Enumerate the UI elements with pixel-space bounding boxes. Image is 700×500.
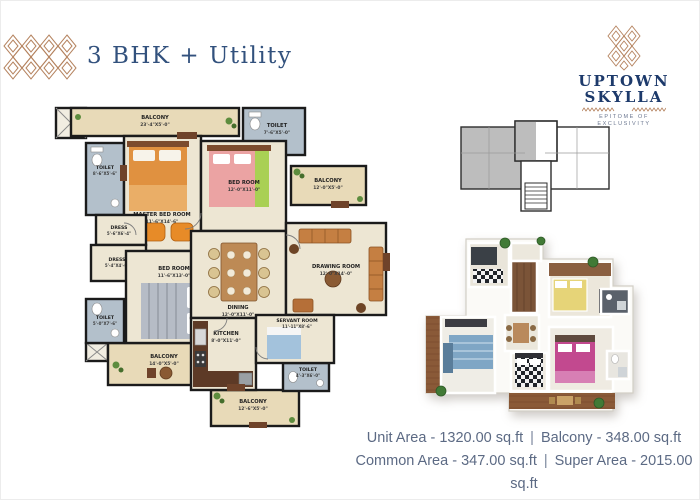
side-table-icon bbox=[289, 244, 299, 254]
plan3d-bedroom-magenta bbox=[549, 327, 613, 391]
page-title: 3 BHK + Utility bbox=[87, 43, 292, 69]
sofa-icon bbox=[443, 343, 453, 373]
pillow-icon bbox=[213, 154, 230, 164]
plan3d-hall bbox=[511, 243, 541, 261]
room-bed-top: BED ROOM 12'-0"X11'-0" bbox=[201, 141, 286, 231]
separator: | bbox=[537, 453, 555, 469]
checker-floor bbox=[473, 269, 503, 283]
svg-text:5'-6"X6'-4": 5'-6"X6'-4" bbox=[107, 231, 131, 236]
area-line-2: Common Area - 347.00 sq.ft|Super Area - … bbox=[349, 450, 699, 496]
patio-table-icon bbox=[557, 396, 573, 405]
wc-icon bbox=[92, 154, 102, 166]
logo-name-line1: UPTOWN bbox=[574, 73, 674, 89]
floor-plan-2d: BALCONY 23'-4"X5'-0" BALCONY 12'-0"X5'-0… bbox=[31, 103, 396, 455]
unit-area-text: Unit Area - 1320.00 sq.ft bbox=[367, 430, 523, 446]
svg-text:14'-0"X5'-0": 14'-0"X5'-0" bbox=[149, 361, 179, 367]
headboard-icon bbox=[555, 335, 595, 342]
area-line-1: Unit Area - 1320.00 sq.ft|Balcony - 348.… bbox=[349, 427, 699, 450]
pillow-icon bbox=[159, 150, 181, 161]
svg-text:BALCONY: BALCONY bbox=[239, 399, 267, 405]
armchair-icon bbox=[171, 223, 193, 241]
svg-text:KITCHEN: KITCHEN bbox=[213, 331, 239, 337]
chair-icon bbox=[259, 268, 270, 279]
key-plan bbox=[449, 113, 624, 218]
svg-text:BALCONY: BALCONY bbox=[150, 354, 178, 360]
pillow-icon bbox=[234, 154, 251, 164]
svg-text:4'-3"X6'-0": 4'-3"X6'-0" bbox=[296, 373, 320, 378]
service-shaft bbox=[86, 343, 108, 361]
room-toilet-servant: TOILET 4'-3"X6'-0" bbox=[283, 363, 329, 391]
svg-text:11'-11"X8'-6": 11'-11"X8'-6" bbox=[282, 324, 312, 329]
room-toilet-bottom-left: TOILET 5'-0"X7'-6" bbox=[86, 299, 124, 343]
plan3d-bath-top bbox=[601, 289, 629, 314]
key-plan-stairs-icon bbox=[525, 183, 547, 209]
room-toilet-left: TOILET 8'-6"X5'-6" bbox=[86, 143, 124, 215]
room-balcony-top: BALCONY 23'-4"X5'-0" bbox=[71, 108, 239, 136]
chair-icon bbox=[209, 268, 220, 279]
logo-lattice-icon bbox=[607, 25, 641, 71]
bed-runner-icon bbox=[255, 151, 269, 207]
balcony-chair-icon bbox=[147, 368, 156, 378]
dining-table-icon bbox=[513, 323, 529, 343]
headboard-icon bbox=[515, 353, 543, 358]
svg-text:DRAWING ROOM: DRAWING ROOM bbox=[312, 264, 360, 270]
room-dining: DINING 12'-0"X11'-0" bbox=[191, 231, 286, 318]
plan3d-kitchen bbox=[469, 243, 509, 287]
plan3d-bath-bottom bbox=[607, 351, 629, 379]
balcony-area-text: Balcony - 348.00 sq.ft bbox=[541, 430, 681, 446]
washbasin-icon bbox=[111, 199, 119, 207]
svg-text:8'-6"X5'-6": 8'-6"X5'-6" bbox=[93, 171, 117, 176]
wc-tank-icon bbox=[249, 112, 261, 117]
brand-lattice-pattern bbox=[3, 34, 77, 80]
headboard-icon bbox=[207, 145, 271, 151]
svg-text:11'-6"X13'-0": 11'-6"X13'-0" bbox=[158, 273, 191, 279]
svg-text:BED ROOM: BED ROOM bbox=[228, 180, 260, 186]
plan3d-dining bbox=[505, 315, 539, 351]
area-summary: Unit Area - 1320.00 sq.ft|Balcony - 348.… bbox=[349, 427, 699, 496]
diamond-row-2 bbox=[13, 46, 67, 68]
room-kitchen: KITCHEN 8'-0"X11'-0" bbox=[191, 318, 256, 390]
diamond-row-3 bbox=[4, 57, 76, 79]
chair-icon bbox=[209, 287, 220, 298]
tv-unit-icon bbox=[445, 319, 487, 327]
svg-text:DINING: DINING bbox=[227, 305, 248, 311]
page: 3 BHK + Utility UPTOWN SKYLLA EPITOME OF… bbox=[0, 0, 700, 500]
logo-name-line2: SKYLLA bbox=[574, 89, 674, 105]
room-label: BALCONY bbox=[141, 115, 169, 121]
stove-icon bbox=[195, 351, 206, 367]
plan3d-living bbox=[441, 317, 495, 393]
room-servant: SERVANT ROOM 11'-11"X8'-6" bbox=[256, 315, 334, 363]
sofa-icon bbox=[369, 247, 383, 301]
svg-text:BALCONY: BALCONY bbox=[314, 178, 342, 184]
room-balcony-bottom: BALCONY 12'-6"X5'-0" bbox=[211, 390, 299, 426]
washbasin-icon bbox=[111, 329, 119, 337]
sink-icon bbox=[195, 329, 206, 345]
svg-text:12'-0"X11'-0": 12'-0"X11'-0" bbox=[228, 187, 261, 193]
svg-text:7'-6"X5'-0": 7'-6"X5'-0" bbox=[264, 130, 291, 136]
svg-text:11'-6"X14'-6": 11'-6"X14'-6" bbox=[146, 219, 179, 225]
fridge-icon bbox=[239, 373, 252, 385]
chair-icon bbox=[209, 249, 220, 260]
chair-icon bbox=[259, 249, 270, 260]
svg-text:BED ROOM: BED ROOM bbox=[158, 266, 190, 272]
headboard-icon bbox=[127, 141, 189, 147]
blanket-icon bbox=[129, 185, 187, 211]
room-balcony-right: BALCONY 12'-0"X5'-0" bbox=[291, 166, 366, 205]
svg-text:12'-6"X5'-0": 12'-6"X5'-0" bbox=[238, 406, 268, 412]
pillow-icon bbox=[133, 150, 155, 161]
svg-text:12'-0"X5'-0": 12'-0"X5'-0" bbox=[313, 185, 343, 191]
room-drawing: DRAWING ROOM 12'-0"X14'-0" bbox=[286, 223, 386, 315]
wc-icon bbox=[92, 303, 102, 315]
armchair-icon bbox=[293, 299, 313, 312]
washbasin-icon bbox=[317, 380, 324, 387]
room-dress-upper: DRESS 5'-6"X6'-4" bbox=[96, 215, 146, 245]
svg-text:TOILET: TOILET bbox=[267, 123, 288, 129]
chair-icon bbox=[259, 287, 270, 298]
balcony-table-icon bbox=[160, 367, 172, 379]
svg-text:5'-0"X7'-6": 5'-0"X7'-6" bbox=[93, 321, 117, 326]
plan3d-bedroom-checker bbox=[511, 353, 547, 391]
dining-table-icon bbox=[221, 243, 257, 301]
svg-text:8'-0"X11'-0": 8'-0"X11'-0" bbox=[211, 338, 241, 344]
svg-text:12'-0"X14'-0": 12'-0"X14'-0" bbox=[320, 271, 353, 277]
floor-plan-3d bbox=[421, 231, 699, 426]
side-deck bbox=[426, 316, 441, 393]
common-area-text: Common Area - 347.00 sq.ft bbox=[356, 453, 537, 469]
side-table-icon bbox=[356, 303, 366, 313]
separator: | bbox=[523, 430, 541, 446]
blanket-icon bbox=[555, 371, 595, 383]
wc-icon bbox=[250, 118, 260, 130]
logo-divider bbox=[582, 107, 666, 112]
counter-icon bbox=[471, 247, 497, 265]
room-dims: 23'-4"X5'-0" bbox=[140, 122, 170, 128]
